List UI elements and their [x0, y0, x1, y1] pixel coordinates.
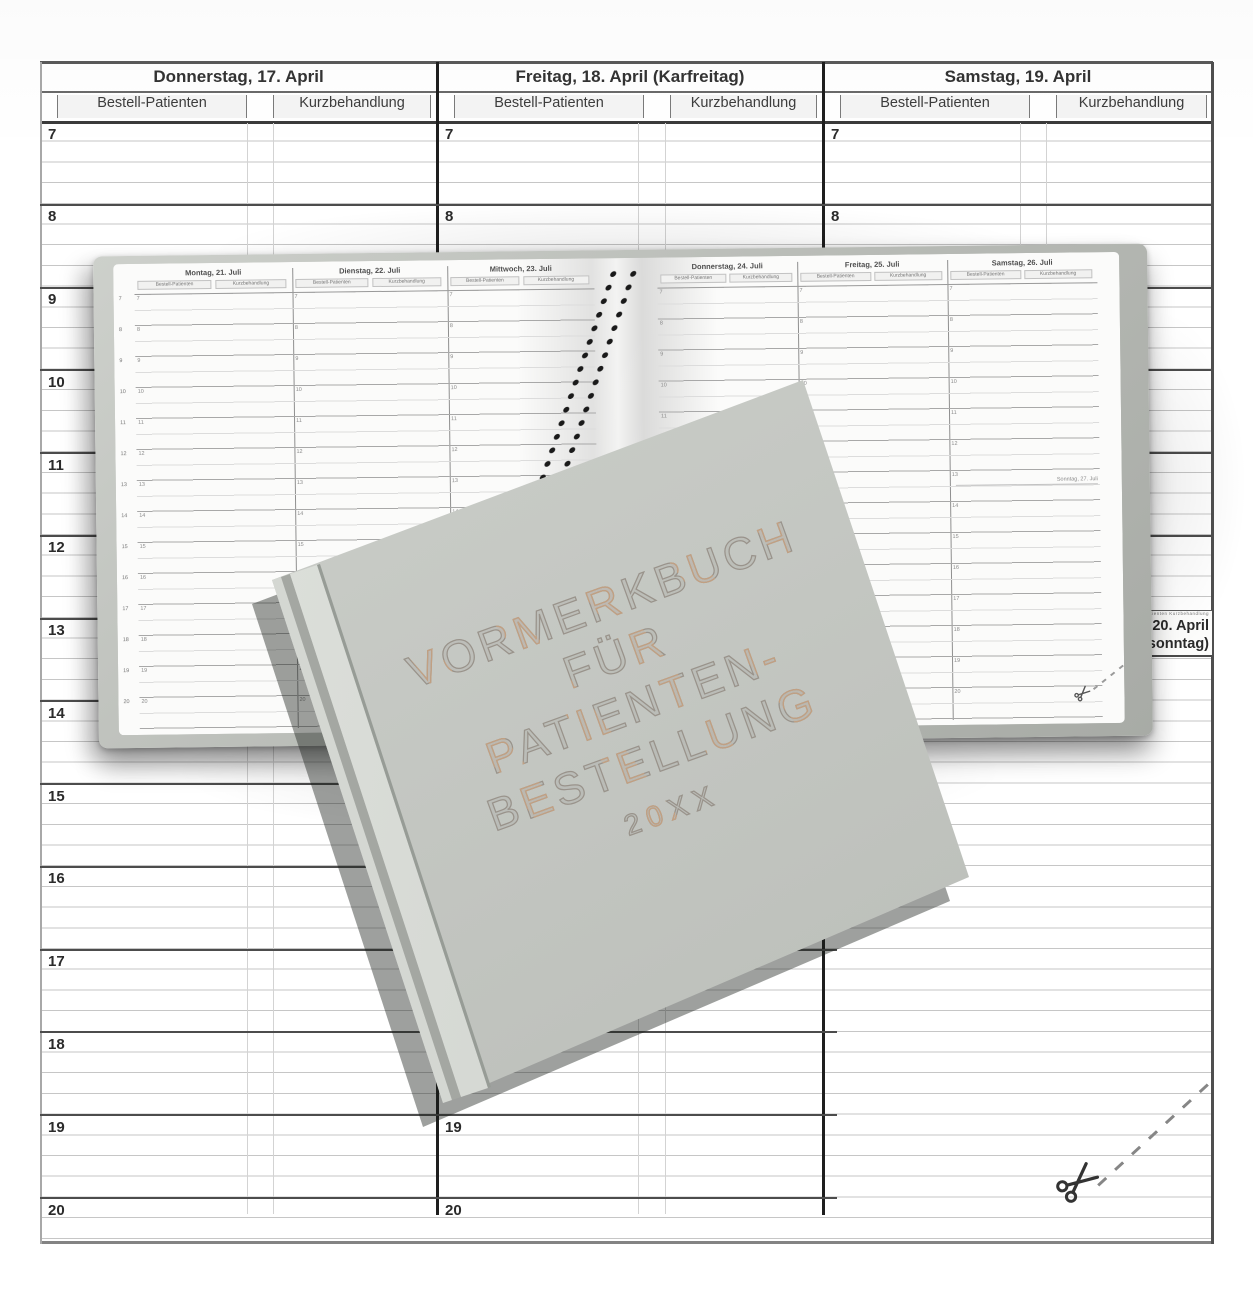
book-gutter-hour-label: 9: [119, 358, 131, 364]
book-hour-label: 9: [950, 348, 960, 354]
day-header: Donnerstag, 17. April: [42, 67, 435, 87]
book-subheader-bestell-patienten: Bestell-Patienten: [950, 270, 1021, 280]
book-hour-label: 7: [659, 289, 669, 295]
hour-label: 7: [831, 126, 865, 143]
calendar-top-border: [40, 61, 1213, 64]
book-hour-label: 12: [138, 451, 148, 457]
hour-label: 19: [445, 1119, 479, 1136]
book-gutter-hour-label: 16: [122, 575, 134, 581]
book-hour-label: 10: [661, 382, 671, 388]
book-hour-label: 8: [660, 320, 670, 326]
book-day-header: Freitag, 25. Juli: [798, 259, 946, 270]
subheader-kurzbehandlung: Kurzbehandlung: [670, 95, 817, 118]
book-gutter-hour-label: 11: [120, 420, 132, 426]
hour-label: 18: [48, 1036, 82, 1053]
hour-line: [823, 204, 1211, 206]
book-hour-label: 19: [954, 658, 964, 664]
book-hour-label: 7: [449, 292, 459, 298]
book-subheader-bestell-patienten: Bestell-Patienten: [800, 272, 871, 282]
book-subheader-kurzbehandlung: Kurzbehandlung: [1024, 269, 1092, 279]
book-hour-label: 18: [141, 637, 151, 643]
subheader-bestell-patienten: Bestell-Patienten: [454, 95, 644, 118]
book-gutter-hour-label: 20: [123, 699, 135, 705]
book-column-rules: [947, 282, 1102, 725]
hour-label: 16: [48, 870, 82, 887]
hour-line: [437, 1114, 837, 1116]
book-hour-label: 14: [297, 511, 307, 517]
book-gutter-hour-label: 10: [120, 389, 132, 395]
book-hour-label: 12: [296, 449, 306, 455]
book-hour-label: 14: [139, 513, 149, 519]
book-hour-label: 11: [451, 416, 461, 422]
book-hour-label: 9: [800, 350, 810, 356]
book-hour-label: 11: [138, 420, 148, 426]
book-hour-label: 10: [951, 379, 961, 385]
book-hour-label: 18: [954, 627, 964, 633]
hour-line: [40, 1114, 437, 1116]
book-hour-label: 11: [296, 418, 306, 424]
hour-label: 10: [48, 374, 82, 391]
book-hour-label: 13: [452, 478, 462, 484]
book-hour-label: 8: [950, 317, 960, 323]
book-hour-label: 15: [952, 534, 962, 540]
book-hour-label: 7: [799, 288, 809, 294]
book-subheader-kurzbehandlung: Kurzbehandlung: [729, 273, 792, 283]
book-hour-label: 10: [296, 387, 306, 393]
book-hour-label: 8: [295, 325, 305, 331]
book-hour-label: 19: [141, 668, 151, 674]
book-day-header: Samstag, 26. Juli: [948, 257, 1096, 268]
book-gutter-hour-label: 19: [123, 668, 135, 674]
book-gutter-hour-label: 17: [122, 606, 134, 612]
book-hour-label: 7: [137, 296, 147, 302]
book-hour-label: 9: [660, 351, 670, 357]
hour-line: [437, 1197, 837, 1199]
hour-line: [437, 204, 837, 206]
book-hour-label: 9: [295, 356, 305, 362]
book-hour-label: 14: [952, 503, 962, 509]
book-hour-label: 9: [137, 358, 147, 364]
book-hour-label: 11: [951, 410, 961, 416]
hour-label: 19: [48, 1119, 82, 1136]
subheader-divider-line: [40, 121, 1213, 124]
book-gutter-hour-label: 18: [123, 637, 135, 643]
hour-label: 11: [48, 457, 82, 474]
book-subheader-bestell-patienten: Bestell-Patienten: [450, 276, 519, 286]
book-hour-label: 7: [949, 286, 959, 292]
subheader-kurzbehandlung: Kurzbehandlung: [1056, 95, 1207, 118]
hour-line: [40, 204, 437, 206]
hour-label: 7: [48, 126, 82, 143]
hour-label: 12: [48, 539, 82, 556]
day-header: Freitag, 18. April (Karfreitag): [439, 67, 821, 87]
hour-label: 9: [48, 291, 82, 308]
hour-label: 17: [48, 953, 82, 970]
hour-label: 20: [445, 1202, 479, 1219]
book-hour-label: 20: [954, 689, 964, 695]
book-hour-label: 11: [661, 413, 671, 419]
book-subheader-kurzbehandlung: Kurzbehandlung: [874, 271, 942, 281]
book-subheader-kurzbehandlung: Kurzbehandlung: [523, 275, 589, 285]
day-header: Samstag, 19. April: [825, 67, 1211, 87]
calendar-bottom-border: [40, 1241, 1213, 1244]
book-subheader-bestell-patienten: Bestell-Patienten: [660, 274, 726, 284]
book-hour-label: 20: [141, 699, 151, 705]
hour-label: 8: [831, 208, 865, 225]
calendar-left-border: [40, 62, 42, 1244]
hour-label: 7: [445, 126, 479, 143]
book-day-header: Mittwoch, 23. Juli: [448, 263, 593, 274]
book-hour-label: 15: [140, 544, 150, 550]
book-subheader-kurzbehandlung: Kurzbehandlung: [215, 279, 286, 289]
book-hour-label: 16: [140, 575, 150, 581]
hour-line: [40, 1031, 437, 1033]
book-gutter-hour-label: 14: [121, 513, 133, 519]
book-hour-label: 16: [953, 565, 963, 571]
book-hour-label: 17: [953, 596, 963, 602]
book-hour-label: 8: [450, 323, 460, 329]
product-image: Donnerstag, 17. AprilBestell-PatientenKu…: [0, 0, 1253, 1308]
book-subheader-bestell-patienten: Bestell-Patienten: [137, 280, 211, 290]
subheader-bestell-patienten: Bestell-Patienten: [840, 95, 1030, 118]
book-subheader-bestell-patienten: Bestell-Patienten: [295, 278, 368, 288]
book-gutter-hour-label: 15: [122, 544, 134, 550]
hour-label: 20: [48, 1202, 82, 1219]
book-gutter-hour-label: 8: [119, 327, 131, 333]
book-hour-label: 8: [137, 327, 147, 333]
book-gutter-hour-label: 13: [121, 482, 133, 488]
book-hour-label: 7: [295, 294, 305, 300]
book-hour-label: 13: [139, 482, 149, 488]
book-hour-label: 17: [140, 606, 150, 612]
hour-label: 15: [48, 788, 82, 805]
book-subheader-kurzbehandlung: Kurzbehandlung: [372, 277, 442, 287]
book-hour-label: 10: [138, 389, 148, 395]
hour-label: 14: [48, 705, 82, 722]
hour-label: 8: [445, 208, 479, 225]
book-hour-label: 10: [451, 385, 461, 391]
book-hour-label: 12: [451, 447, 461, 453]
book-day-header: Montag, 21. Juli: [135, 267, 291, 278]
book-hour-label: 15: [298, 542, 308, 548]
book-gutter-hour-label: 12: [120, 451, 132, 457]
subheader-bestell-patienten: Bestell-Patienten: [57, 95, 247, 118]
book-day-header: Donnerstag, 24. Juli: [658, 261, 796, 272]
book-hour-label: 13: [297, 480, 307, 486]
book-gutter-hour-label: 7: [119, 296, 131, 302]
hour-label: 13: [48, 622, 82, 639]
book-hour-label: 9: [450, 354, 460, 360]
hour-label: 8: [48, 208, 82, 225]
subheader-kurzbehandlung: Kurzbehandlung: [273, 95, 431, 118]
book-hour-label: 12: [951, 441, 961, 447]
header-divider-line: [40, 91, 1213, 93]
hour-line: [40, 1197, 437, 1199]
book-hour-label: 8: [800, 319, 810, 325]
book-day-header: Dienstag, 22. Juli: [293, 265, 446, 276]
